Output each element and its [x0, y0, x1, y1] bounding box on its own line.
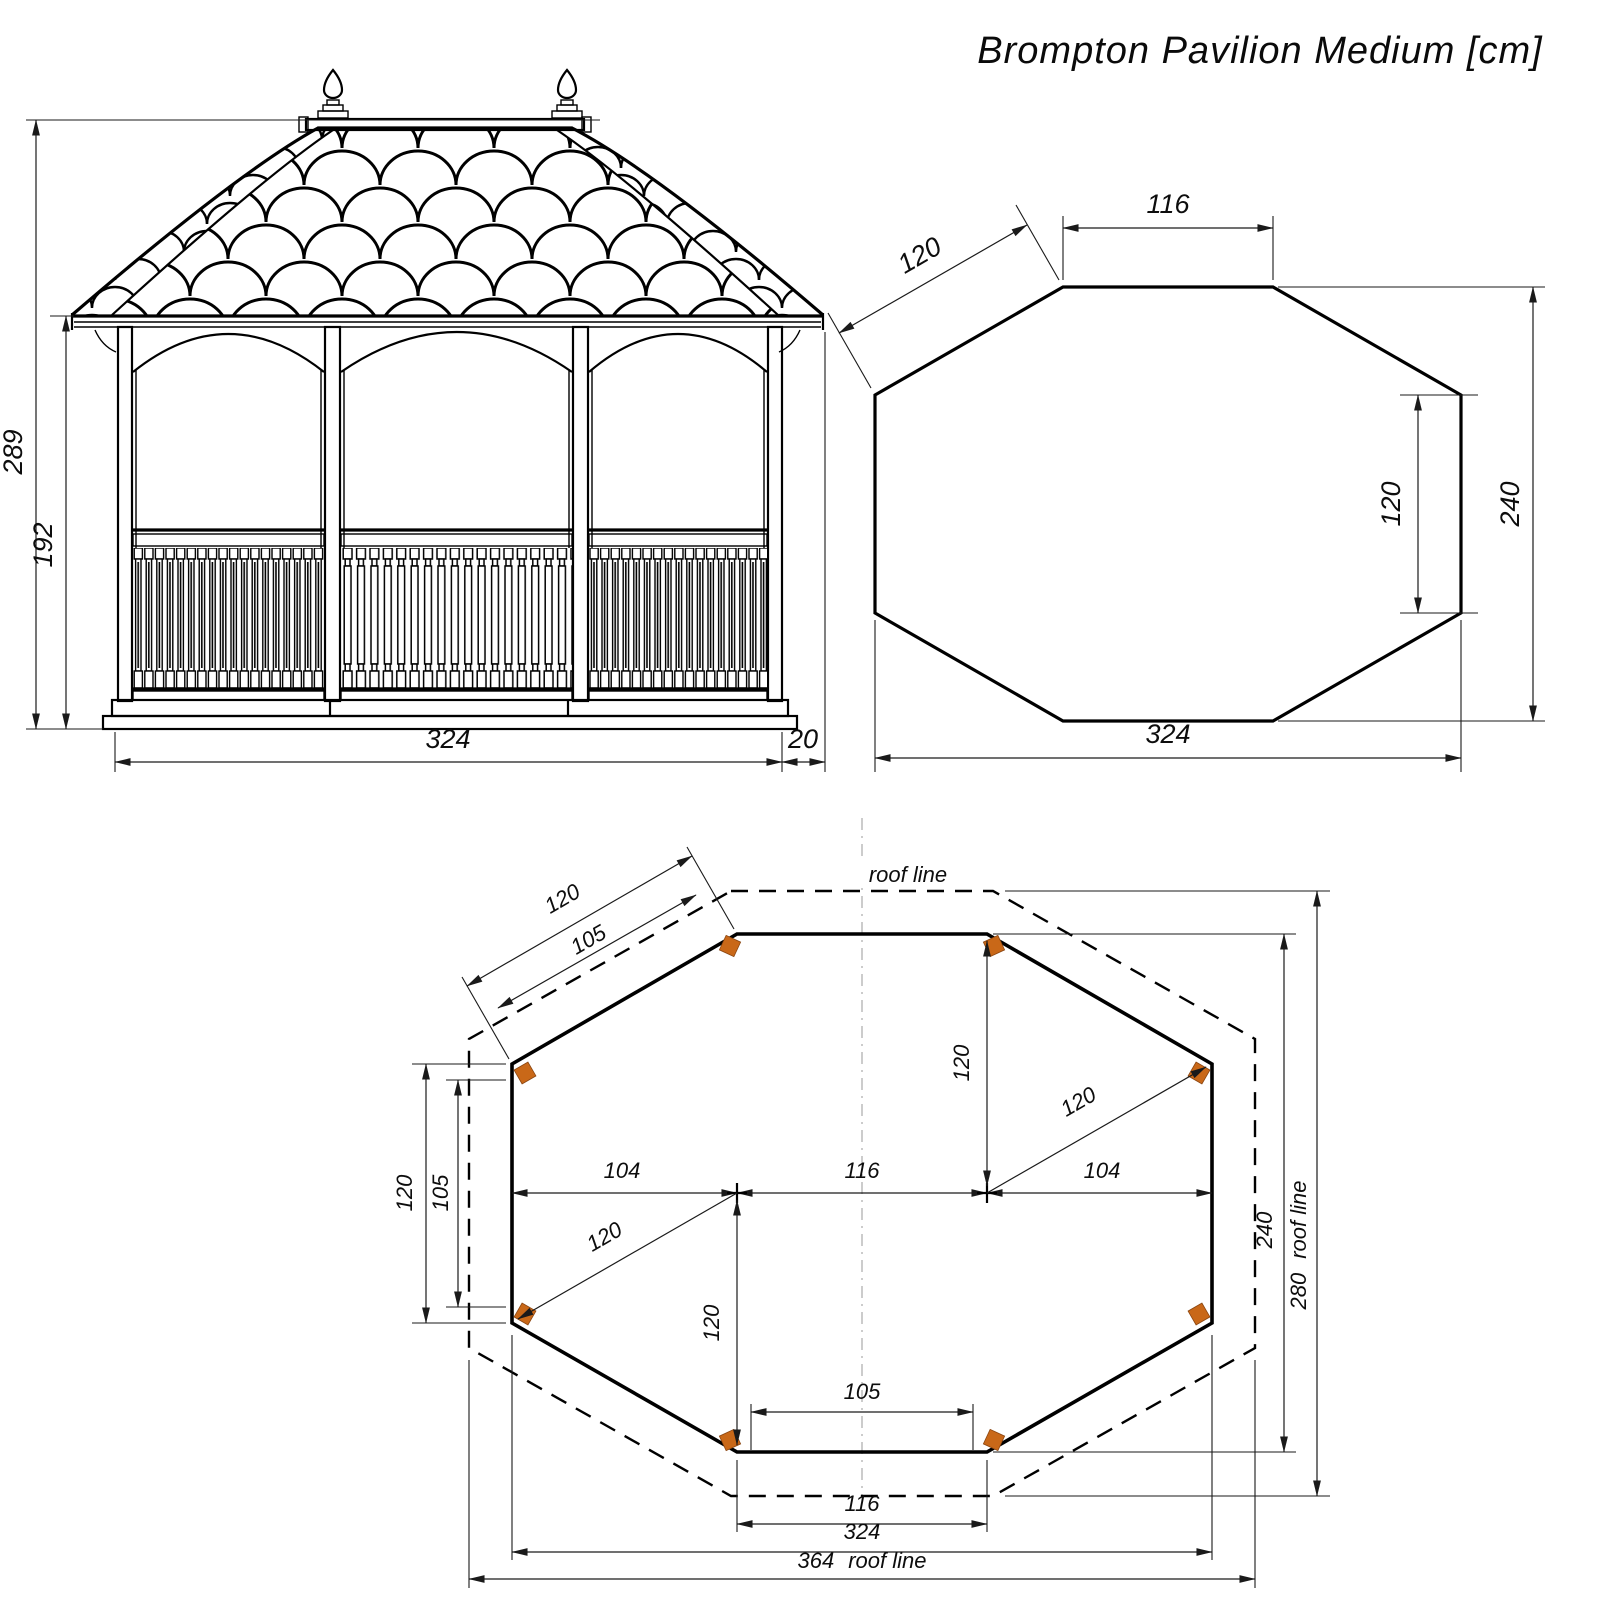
roof-plan-view: 116 120 120 240 324 [820, 180, 1600, 800]
finial-right [552, 70, 582, 118]
dim-roof-width: 364roof line [798, 1548, 927, 1573]
roof-shingles [60, 126, 835, 318]
dim-roof-overhang: 20 [787, 724, 818, 754]
svg-text:240: 240 [1252, 1211, 1277, 1249]
svg-text:120: 120 [540, 878, 585, 918]
svg-text:105: 105 [428, 1174, 453, 1211]
roof-plan-dimensions: 116 120 120 240 324 [828, 189, 1545, 772]
arches [95, 330, 800, 372]
svg-text:120: 120 [699, 1304, 724, 1341]
svg-text:120: 120 [392, 1174, 417, 1211]
svg-text:120: 120 [582, 1216, 627, 1256]
drawing-title: Brompton Pavilion Medium [cm] [960, 30, 1560, 73]
dim-depth: 240 [1495, 481, 1525, 527]
dim-eave-height: 192 [28, 522, 58, 567]
dim-side-edge: 120 [1376, 481, 1406, 526]
dim-overall-height: 289 [0, 429, 28, 475]
drawing-sheet: Brompton Pavilion Medium [cm] [0, 0, 1600, 1600]
svg-text:104: 104 [604, 1158, 641, 1183]
dim-roof-depth: 280roof line [1286, 1181, 1311, 1311]
balustrade [133, 530, 767, 700]
dim-base-width: 324 [425, 724, 470, 754]
corner-diagonal-dims: 120 105 [462, 847, 734, 1059]
floor-plan-view: roof line 120 105 120 105 104 [380, 800, 1400, 1600]
octagon-outline [875, 287, 1461, 721]
svg-text:116: 116 [844, 1158, 880, 1183]
ridge-cap [299, 117, 591, 132]
dim-width: 324 [1145, 719, 1190, 749]
roof-line-top-label: roof line [850, 862, 966, 888]
svg-text:120: 120 [1056, 1081, 1101, 1121]
dim-front-edge: 116 [1146, 189, 1190, 219]
bay-dims: 104 116 104 [512, 1158, 1212, 1203]
svg-text:roof line: roof line [869, 862, 947, 887]
dim-corner-edge: 120 [892, 231, 946, 280]
svg-text:116: 116 [844, 1491, 880, 1516]
left-side-dims: 120 105 [392, 1064, 506, 1323]
finial-left [318, 70, 348, 118]
svg-text:105: 105 [844, 1379, 881, 1404]
svg-text:104: 104 [1084, 1158, 1121, 1183]
front-elevation-view: 289 192 324 20 [0, 0, 850, 800]
svg-text:324: 324 [844, 1519, 881, 1544]
svg-text:120: 120 [949, 1044, 974, 1081]
